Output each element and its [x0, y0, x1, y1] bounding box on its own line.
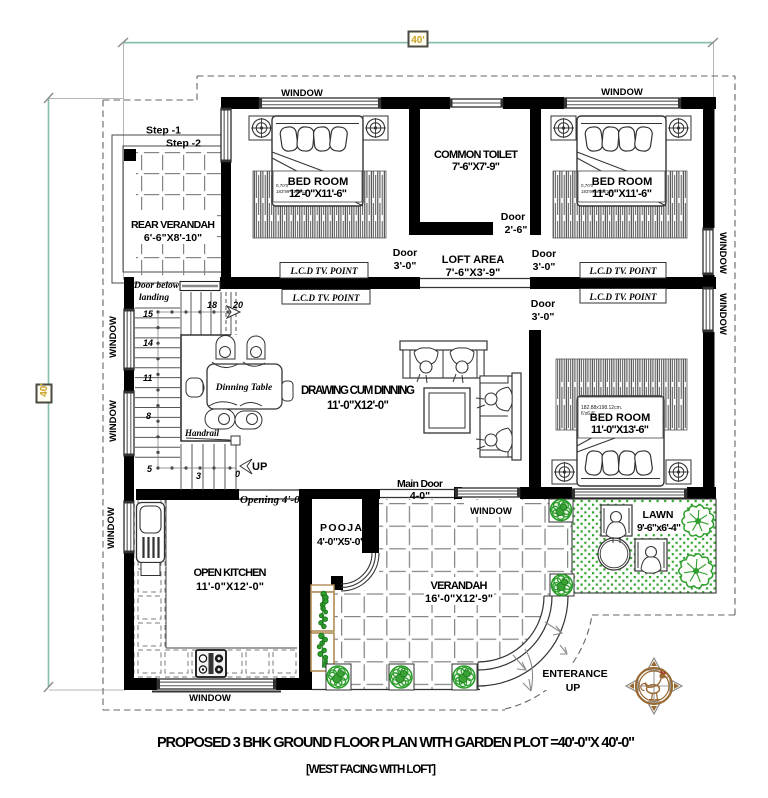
svg-text:Main Door: Main Door — [397, 478, 443, 490]
svg-text:POOJA: POOJA — [320, 522, 362, 534]
svg-text:WINDOW: WINDOW — [106, 507, 117, 549]
svg-text:4'-0"X5'-0": 4'-0"X5'-0" — [317, 536, 365, 548]
svg-text:Step -2: Step -2 — [166, 138, 201, 150]
svg-text:WINDOW: WINDOW — [108, 316, 119, 358]
svg-text:3: 3 — [196, 471, 201, 481]
svg-text:OPEN KITCHEN: OPEN KITCHEN — [194, 567, 267, 579]
svg-text:18: 18 — [207, 300, 217, 310]
svg-text:16'-0"X12'-9": 16'-0"X12'-9" — [425, 593, 493, 605]
svg-text:landing: landing — [139, 293, 169, 303]
svg-text:20: 20 — [232, 300, 243, 310]
svg-text:3'-0": 3'-0" — [532, 311, 555, 323]
svg-text:L.C.D TV. POINT: L.C.D TV. POINT — [291, 293, 360, 303]
svg-text:Step -1: Step -1 — [146, 125, 181, 137]
svg-text:14: 14 — [143, 338, 153, 348]
svg-text:ENTERANCE: ENTERANCE — [542, 668, 607, 680]
svg-text:2'-6": 2'-6" — [505, 224, 528, 236]
svg-text:11: 11 — [143, 373, 152, 383]
svg-text:15: 15 — [143, 309, 154, 319]
svg-text:3'-0": 3'-0" — [533, 261, 556, 273]
svg-text:11'-0"X12'-0": 11'-0"X12'-0" — [196, 581, 264, 593]
svg-text:PROPOSED 3 BHK GROUND FLOOR PL: PROPOSED 3 BHK GROUND FLOOR PLAN WITH GA… — [157, 735, 635, 751]
svg-text:Door: Door — [501, 211, 526, 223]
svg-text:11'-0"X13'-6": 11'-0"X13'-6" — [591, 424, 649, 436]
svg-text:[WEST FACING WITH LOFT]: [WEST FACING WITH LOFT] — [306, 764, 436, 776]
svg-text:11'-0"X12'-0": 11'-0"X12'-0" — [327, 400, 389, 412]
svg-text:REAR VERANDAH: REAR VERANDAH — [131, 219, 215, 231]
svg-text:WINDOW: WINDOW — [189, 693, 231, 704]
svg-text:VERANDAH: VERANDAH — [431, 580, 488, 592]
svg-text:3'-0": 3'-0" — [394, 260, 417, 272]
svg-text:WINDOW: WINDOW — [281, 88, 323, 99]
svg-text:Opening 4'-0'': Opening 4'-0'' — [240, 494, 306, 506]
svg-text:UP: UP — [566, 682, 581, 694]
svg-text:Handrail: Handrail — [184, 428, 220, 438]
svg-text:Dinning Table: Dinning Table — [215, 383, 273, 393]
svg-text:12'-0"X11'-6": 12'-0"X11'-6" — [289, 188, 347, 200]
svg-text:Door below: Door below — [133, 281, 180, 291]
svg-text:0: 0 — [235, 469, 240, 479]
svg-text:Door: Door — [531, 298, 556, 310]
svg-text:WINDOW: WINDOW — [717, 232, 728, 274]
svg-text:WINDOW: WINDOW — [108, 400, 119, 442]
svg-text:WINDOW: WINDOW — [717, 293, 728, 335]
svg-text:8: 8 — [146, 411, 151, 421]
svg-text:DRAWING CUM DINNING: DRAWING CUM DINNING — [301, 385, 415, 397]
svg-text:BED ROOM: BED ROOM — [592, 176, 653, 188]
svg-text:BED ROOM: BED ROOM — [288, 176, 349, 188]
svg-text:9'-6"x6'-4": 9'-6"x6'-4" — [637, 522, 681, 534]
svg-text:6'-6"X8'-10": 6'-6"X8'-10" — [144, 232, 202, 244]
svg-text:LOFT AREA: LOFT AREA — [442, 254, 505, 266]
svg-text:WINDOW: WINDOW — [601, 87, 643, 98]
svg-text:L.C.D TV. POINT: L.C.D TV. POINT — [289, 266, 358, 276]
svg-text:WINDOW: WINDOW — [470, 506, 512, 517]
svg-text:Door: Door — [393, 247, 418, 259]
svg-text:40': 40' — [39, 383, 50, 397]
svg-text:0,70'0": 0,70'0" — [276, 183, 290, 188]
svg-text:40': 40' — [411, 35, 425, 46]
svg-text:UP: UP — [252, 461, 267, 473]
svg-text:LAWN: LAWN — [643, 509, 674, 521]
svg-text:11'-0"X11'-6": 11'-0"X11'-6" — [592, 188, 652, 200]
svg-text:L.C.D TV. POINT: L.C.D TV. POINT — [588, 292, 657, 302]
svg-text:COMMON TOILET: COMMON TOILET — [434, 149, 518, 161]
svg-text:Door: Door — [532, 248, 557, 260]
svg-text:L.C.D TV. POINT: L.C.D TV. POINT — [588, 266, 657, 276]
svg-text:7'-6"X7'-9": 7'-6"X7'-9" — [452, 161, 500, 173]
svg-text:BED ROOM: BED ROOM — [590, 412, 651, 424]
svg-text:7'-6"X3'-9": 7'-6"X3'-9" — [446, 267, 501, 279]
